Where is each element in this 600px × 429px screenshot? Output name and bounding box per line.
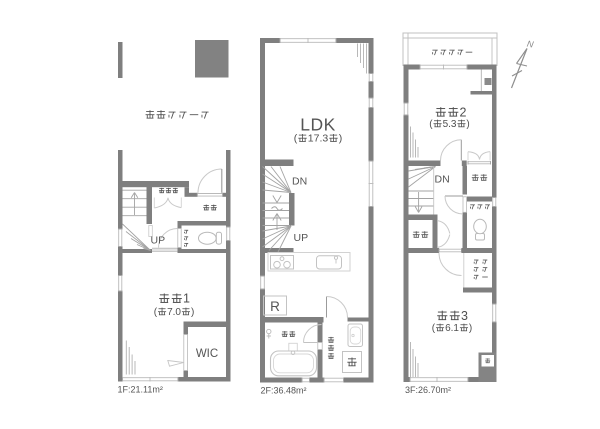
svg-text:1: 1 (183, 292, 190, 306)
svg-text:WIC: WIC (196, 348, 218, 360)
svg-text:3: 3 (461, 309, 468, 323)
svg-text:DN: DN (292, 176, 307, 188)
svg-text:LDK: LDK (300, 115, 336, 135)
svg-text:7.0: 7.0 (167, 307, 181, 318)
svg-text:): ) (191, 307, 194, 318)
svg-text:): ) (339, 133, 343, 145)
svg-text:2F:36.48m²: 2F:36.48m² (261, 386, 307, 396)
svg-text:1F:21.11m²: 1F:21.11m² (118, 385, 163, 395)
svg-text:UP: UP (151, 235, 166, 247)
svg-text:): ) (469, 323, 472, 334)
svg-text:3F:26.70m²: 3F:26.70m² (405, 385, 451, 395)
svg-text:5.3: 5.3 (443, 119, 457, 130)
svg-text:2: 2 (460, 105, 467, 119)
svg-text:DN: DN (435, 174, 450, 186)
svg-text:6.1: 6.1 (445, 323, 459, 334)
svg-text:(: ( (294, 133, 298, 145)
svg-text:17.3: 17.3 (308, 133, 329, 145)
svg-text:): ) (466, 119, 469, 130)
svg-text:UP: UP (294, 232, 309, 244)
svg-text:R: R (270, 299, 280, 314)
